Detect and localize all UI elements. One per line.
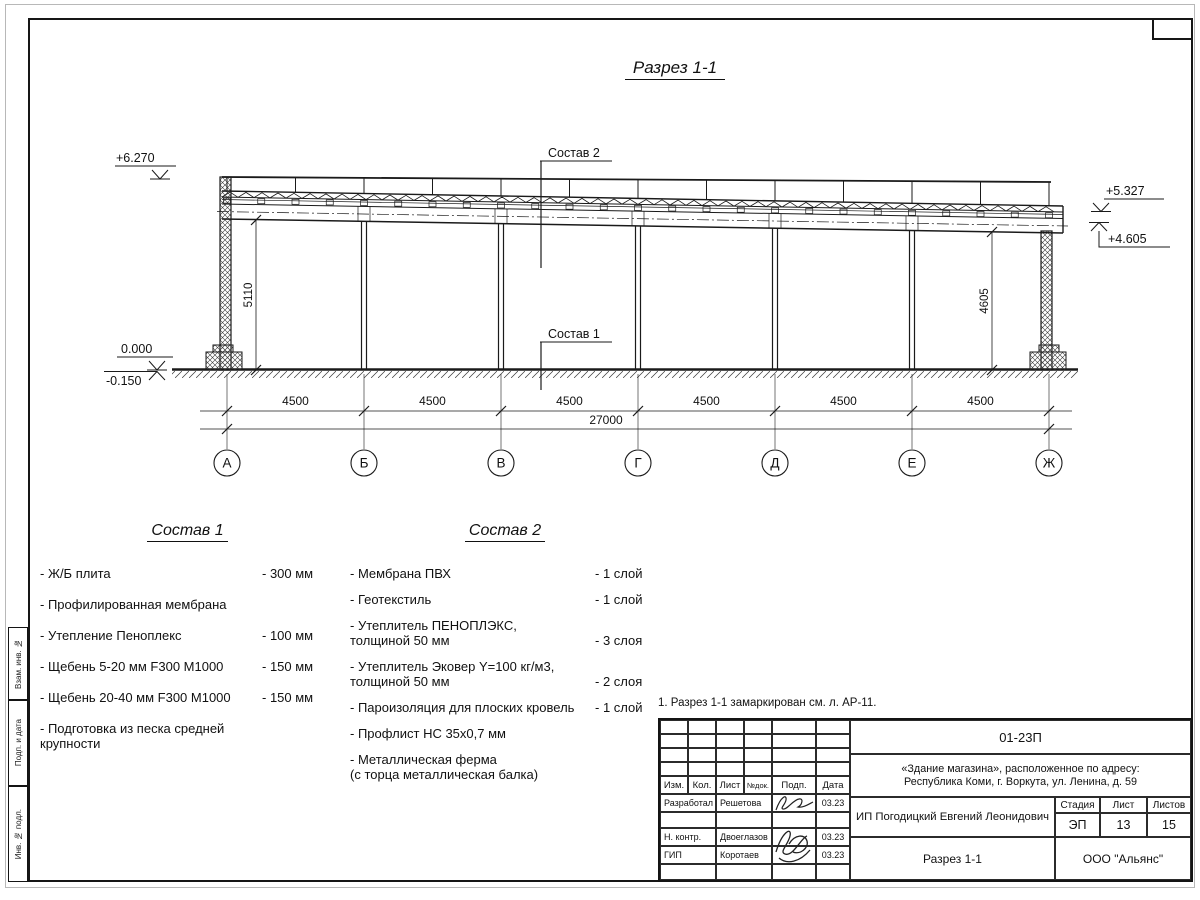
stage-label: Стадия: [1055, 797, 1100, 813]
composition1-block: Состав 1 - Ж/Б плита- 300 мм - Профилиро…: [40, 522, 335, 767]
composition1-title: Состав 1: [40, 522, 335, 540]
deck-connector: [532, 204, 539, 209]
bay-dimension: 4500: [282, 394, 309, 408]
revision-cell: [688, 734, 716, 748]
deck-connector: [1046, 213, 1053, 218]
sheet-label: Лист: [1100, 797, 1147, 813]
vertical-dim-right-value: 4605: [979, 288, 991, 314]
revision-cell: [660, 734, 688, 748]
empty-cell: [816, 812, 850, 828]
deck-connector: [292, 199, 299, 204]
revision-cell: [716, 762, 744, 776]
empty-cell: [816, 864, 850, 880]
list-item: - Профилированная мембрана: [40, 597, 335, 612]
revision-cell: [744, 762, 772, 776]
empty-cell: [660, 812, 716, 828]
revision-cell: [772, 720, 816, 734]
deck-connector: [772, 208, 779, 213]
role-developer: Разработал: [660, 794, 716, 812]
list-item: - Подготовка из песка средней крупности: [40, 721, 335, 751]
deck-connector: [429, 202, 436, 207]
deck-connector: [909, 210, 916, 215]
client-name: ИП Погодицкий Евгений Леонидович: [850, 797, 1055, 837]
deck-connector: [635, 205, 642, 210]
axis-label: Г: [634, 456, 642, 471]
total-dimension: 27000: [589, 413, 623, 427]
list-item: - Утеплитель ПЕНОПЛЭКС, толщиной 50 мм- …: [350, 618, 660, 648]
axis-label: А: [222, 456, 231, 471]
deck-connector: [840, 209, 847, 214]
deck-connector: [874, 210, 881, 215]
organization: ООО "Альянс": [1055, 837, 1191, 880]
name-ncontrol: Двоеглазов: [716, 828, 772, 846]
col-header-podp: Подп.: [772, 776, 816, 794]
margin-cell-vzam: Взам. инв. №: [8, 627, 28, 700]
elevation-mark-right-upper: [1091, 199, 1164, 212]
parapet-rail: [222, 177, 1051, 182]
revision-cell: [688, 748, 716, 762]
revision-cell: [660, 748, 688, 762]
revision-cell: [744, 720, 772, 734]
signature-developer-cell: [772, 794, 816, 812]
date-developer: 03.23: [816, 794, 850, 812]
list-item: - Щебень 20-40 мм F300 М1000- 150 мм: [40, 690, 335, 705]
deck-connector: [669, 206, 676, 211]
deck-connector: [566, 204, 573, 209]
name-developer: Решетова: [716, 794, 772, 812]
elevation-top-left: +6.270: [116, 151, 155, 165]
list-item: - Мембрана ПВХ- 1 слой: [350, 566, 660, 581]
col-header-izm: Изм.: [660, 776, 688, 794]
col-header-ndok: №док.: [744, 776, 772, 794]
axis-label: Е: [907, 456, 916, 471]
sostav2-label: Состав 2: [548, 146, 600, 160]
deck-connector: [943, 211, 950, 216]
deck-connector: [600, 205, 607, 210]
revision-cell: [716, 720, 744, 734]
truss-bottom-chord: [222, 219, 1063, 233]
revision-cell: [716, 734, 744, 748]
axis-label: Б: [360, 456, 369, 471]
empty-cell: [716, 864, 772, 880]
list-item: - Щебень 5-20 мм F300 М1000- 150 мм: [40, 659, 335, 674]
sheets-total: 15: [1147, 813, 1191, 837]
margin-cell-podp: Подп. и дата: [8, 700, 28, 786]
list-item: - Профлист НС 35х0,7 мм: [350, 726, 660, 741]
name-gip: Коротаев: [716, 846, 772, 864]
composition2-block: Состав 2 - Мембрана ПВХ- 1 слой - Геотек…: [350, 522, 660, 793]
revision-cell: [816, 734, 850, 748]
sostav1-label: Состав 1: [548, 327, 600, 341]
sheet-note: 1. Разрез 1-1 замаркирован см. л. АР-11.: [658, 697, 876, 709]
date-gip: 03.23: [816, 846, 850, 864]
bay-dimension: 4500: [419, 394, 446, 408]
col-header-data: Дата: [816, 776, 850, 794]
elevation-right-upper: +5.327: [1106, 184, 1145, 198]
ground-hatch: [172, 371, 1078, 378]
revision-cell: [744, 734, 772, 748]
elevation-minus: -0.150: [106, 374, 141, 388]
elevation-zero: 0.000: [121, 342, 152, 356]
deck-connector: [258, 199, 265, 204]
revision-cell: [688, 720, 716, 734]
drawing-sheet: { "page": { "title": "Разрез 1-1" }, "dr…: [0, 0, 1200, 900]
list-item: - Металлическая ферма (с торца металличе…: [350, 752, 660, 782]
deck-connector: [463, 202, 470, 207]
revision-cell: [772, 762, 816, 776]
object-name: «Здание магазина», расположенное по адре…: [850, 754, 1191, 797]
deck-connector: [498, 203, 505, 208]
deck-connector: [395, 201, 402, 206]
stage-value: ЭП: [1055, 813, 1100, 837]
col-header-kol: Кол.: [688, 776, 716, 794]
composition2-title: Состав 2: [350, 522, 660, 540]
revision-cell: [816, 748, 850, 762]
title-block: Изм. Кол. Лист №док. Подп. Дата Разработ…: [658, 718, 1193, 882]
list-item: - Ж/Б плита- 300 мм: [40, 566, 335, 581]
elevation-right-lower: +4.605: [1108, 232, 1147, 246]
deck-connector: [326, 200, 333, 205]
revision-cell: [716, 748, 744, 762]
list-item: - Пароизоляция для плоских кровель- 1 сл…: [350, 700, 660, 715]
list-item: - Утеплитель Эковер Y=100 кг/м3, толщино…: [350, 659, 660, 689]
axis-label: Д: [770, 456, 779, 471]
generated-geometry: 45004500450045004500450027000АБВГДЕЖ: [200, 177, 1072, 476]
deck-connector: [1011, 212, 1018, 217]
revision-cell: [816, 762, 850, 776]
empty-cell: [660, 864, 716, 880]
truss-axis-line: [217, 212, 1068, 227]
deck-connector: [977, 212, 984, 217]
revision-cell: [744, 748, 772, 762]
sheet-title: Разрез 1-1: [850, 837, 1055, 880]
empty-cell: [716, 812, 772, 828]
revision-cell: [772, 734, 816, 748]
signature-ncontrol-cell: [772, 828, 816, 846]
section-drawing: Состав 2 Состав 1 +6.270 0.000 -0.150 +5…: [0, 0, 1200, 520]
sheet-number: 13: [1100, 813, 1147, 837]
bay-dimension: 4500: [830, 394, 857, 408]
empty-cell: [772, 864, 816, 880]
vertical-dim-left-value: 5110: [243, 283, 255, 308]
revision-cell: [660, 720, 688, 734]
axis-label: Ж: [1043, 456, 1056, 471]
revision-cell: [816, 720, 850, 734]
empty-cell: [772, 812, 816, 828]
signature-gip-cell: [772, 846, 816, 864]
axis-label: В: [496, 456, 505, 471]
col-header-list: Лист: [716, 776, 744, 794]
bay-dimension: 4500: [967, 394, 994, 408]
date-ncontrol: 03.23: [816, 828, 850, 846]
margin-cell-inv: Инв. № подл.: [8, 786, 28, 882]
role-ncontrol: Н. контр.: [660, 828, 716, 846]
elevation-mark-top-left: [115, 166, 176, 179]
role-gip: ГИП: [660, 846, 716, 864]
list-item: - Геотекстиль- 1 слой: [350, 592, 660, 607]
deck-connector: [703, 207, 710, 212]
deck-connector: [806, 208, 813, 213]
revision-cell: [660, 762, 688, 776]
deck-connector: [361, 201, 368, 206]
sheets-label: Листов: [1147, 797, 1191, 813]
doc-number: 01-23П: [850, 720, 1191, 754]
left-wall: [220, 177, 231, 370]
bay-dimension: 4500: [693, 394, 720, 408]
bay-dimension: 4500: [556, 394, 583, 408]
sostav1-leader: [540, 342, 612, 390]
list-item: - Утепление Пеноплекс- 100 мм: [40, 628, 335, 643]
sostav2-leader: [540, 161, 612, 268]
elevation-mark-zero: [117, 357, 173, 370]
revision-cell: [772, 748, 816, 762]
revision-cell: [688, 762, 716, 776]
deck-connector: [737, 207, 744, 212]
